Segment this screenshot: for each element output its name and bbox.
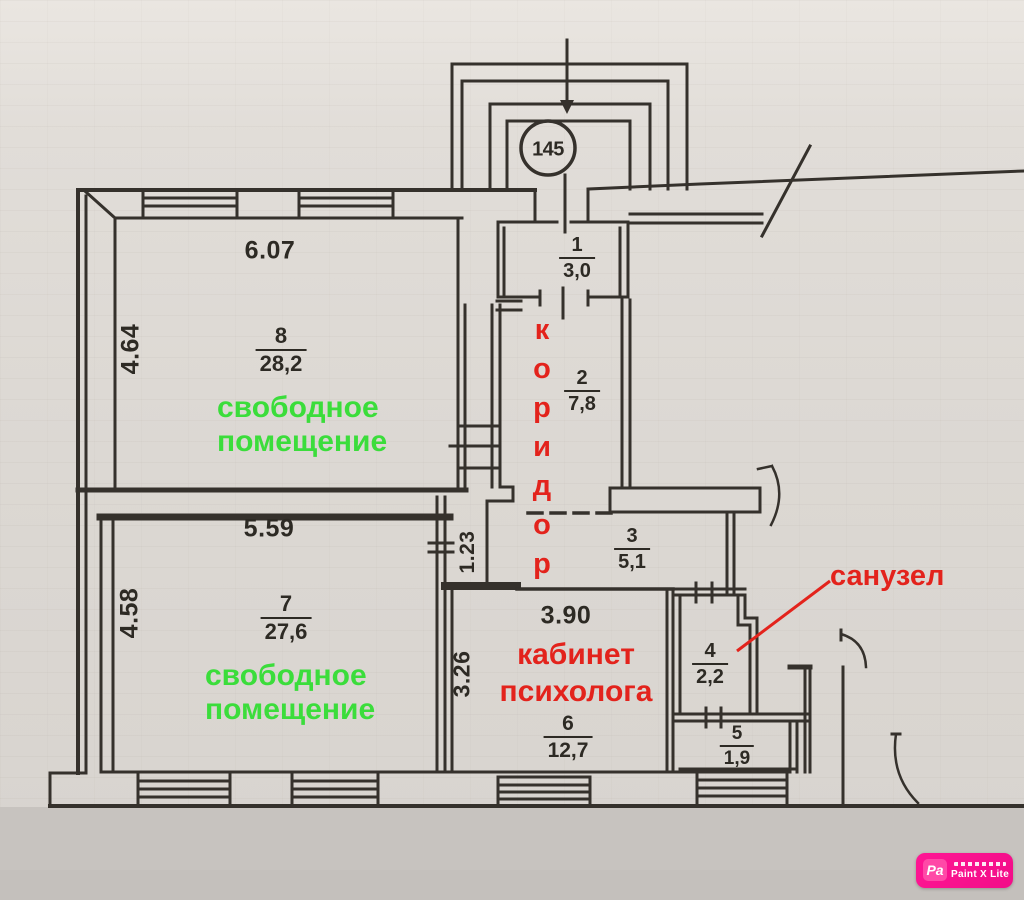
room3-number: 3 <box>624 526 639 548</box>
entry-arrowhead <box>560 100 574 114</box>
bathroom-annotation: санузел <box>830 560 944 593</box>
room4-area: 2,2 <box>692 663 728 687</box>
floorplan-drawing <box>0 0 1024 900</box>
room5-label: 5 1,9 <box>720 724 754 768</box>
free-premises-annotation-room7: свободное помещение <box>205 659 375 727</box>
room1-area: 3,0 <box>559 257 595 281</box>
room6-area: 12,7 <box>544 736 593 761</box>
dim-corridor-width: 1.23 <box>456 531 480 574</box>
office-line2: психолога <box>500 675 653 708</box>
room8-number: 8 <box>273 325 289 349</box>
psychologist-office-annotation: кабинет психолога <box>465 636 687 710</box>
free8-line1: свободное <box>217 391 387 425</box>
room1-label: 1 3,0 <box>559 235 595 281</box>
room7-area: 27,6 <box>261 617 312 643</box>
room3-label: 3 5,1 <box>614 526 650 572</box>
room2-label: 2 7,8 <box>564 368 600 414</box>
room1-number: 1 <box>569 235 584 257</box>
free7-line2: помещение <box>205 693 375 727</box>
paint-x-lite-watermark: Pa Paint X Lite <box>916 853 1013 888</box>
dim-room7-width: 5.59 <box>244 515 295 544</box>
room8-area: 28,2 <box>256 349 307 375</box>
room2-number: 2 <box>574 368 589 390</box>
room3-area: 5,1 <box>614 548 650 572</box>
dim-room8-depth: 4.64 <box>117 324 146 375</box>
bathroom-pointer-line <box>737 581 830 651</box>
thick-wall-block <box>610 488 760 512</box>
free7-line1: свободное <box>205 659 375 693</box>
room5-number: 5 <box>730 724 745 745</box>
watermark-label: Paint X Lite <box>951 869 1009 880</box>
dim-room6-width: 3.90 <box>541 602 592 631</box>
door-arcs <box>758 466 918 803</box>
free8-line2: помещение <box>217 425 387 459</box>
room8-label: 8 28,2 <box>256 325 307 375</box>
room4-label: 4 2,2 <box>692 641 728 687</box>
free-premises-annotation-room8: свободное помещение <box>217 391 387 459</box>
room5-area: 1,9 <box>720 745 754 768</box>
room2-area: 7,8 <box>564 390 600 414</box>
floorplan-scan: 6.07 4.64 5.59 4.58 3.90 3.26 1.23 1 3,0… <box>0 0 1024 900</box>
room6-number: 6 <box>560 713 576 736</box>
watermark-fineprint-dots <box>954 862 1006 866</box>
paint-x-logo-icon: Pa <box>923 859 947 881</box>
room6-label: 6 12,7 <box>544 713 593 761</box>
room7-label: 7 27,6 <box>261 593 312 643</box>
entrance-number: 145 <box>532 139 564 162</box>
corridor-annotation: коридор <box>527 314 556 587</box>
room4-number: 4 <box>702 641 717 663</box>
room7-number: 7 <box>278 593 294 617</box>
dim-room7-depth: 4.58 <box>116 588 145 639</box>
office-line1: кабинет <box>517 638 635 671</box>
dim-room8-width: 6.07 <box>245 237 296 266</box>
